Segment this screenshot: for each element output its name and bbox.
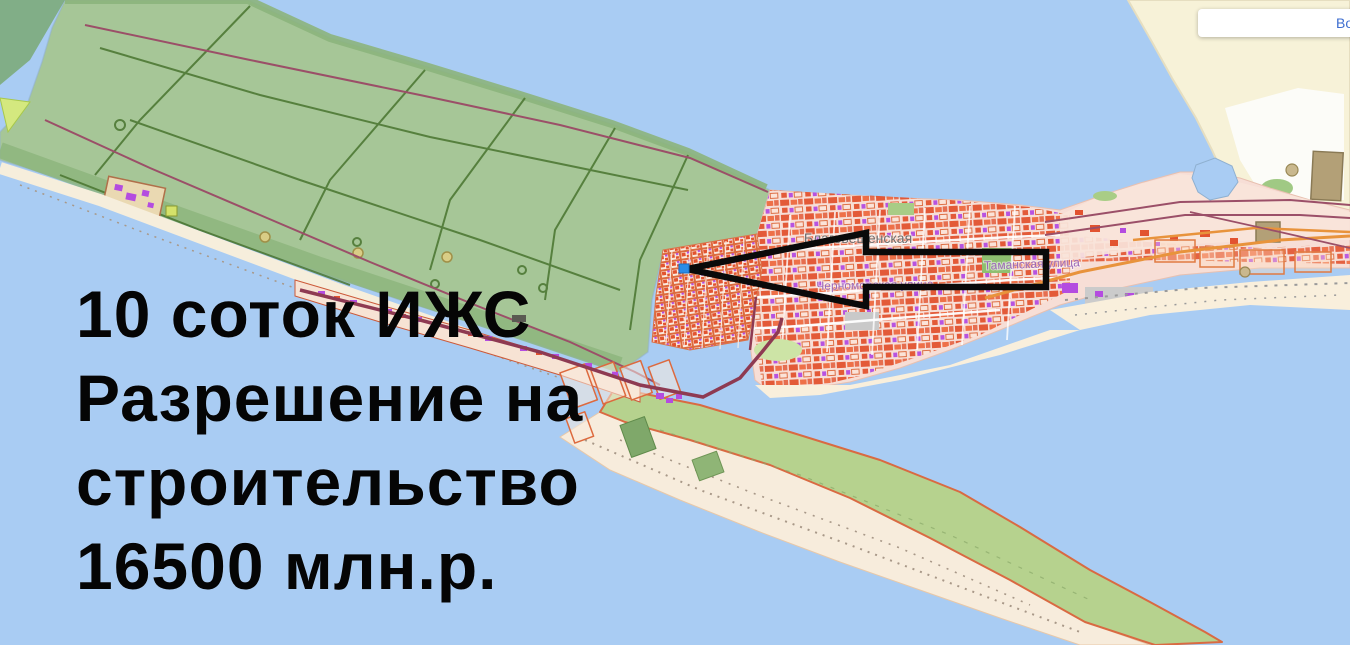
screenshot-stage: Благовещенская Черноморская улица Таманс…: [0, 0, 1350, 645]
west-grid-block: [652, 234, 762, 350]
login-button[interactable]: Во: [1198, 9, 1350, 37]
caption-line-1: 10 соток ИЖС: [76, 272, 583, 356]
listing-caption: 10 соток ИЖС Разрешение на строительство…: [76, 272, 583, 608]
caption-line-3: строительство: [76, 440, 583, 524]
caption-line-4: 16500 млн.р.: [76, 524, 583, 608]
large-building: [1311, 151, 1343, 201]
plot-marker: [679, 264, 689, 273]
caption-line-2: Разрешение на: [76, 356, 583, 440]
login-button-label: Во: [1336, 15, 1350, 31]
